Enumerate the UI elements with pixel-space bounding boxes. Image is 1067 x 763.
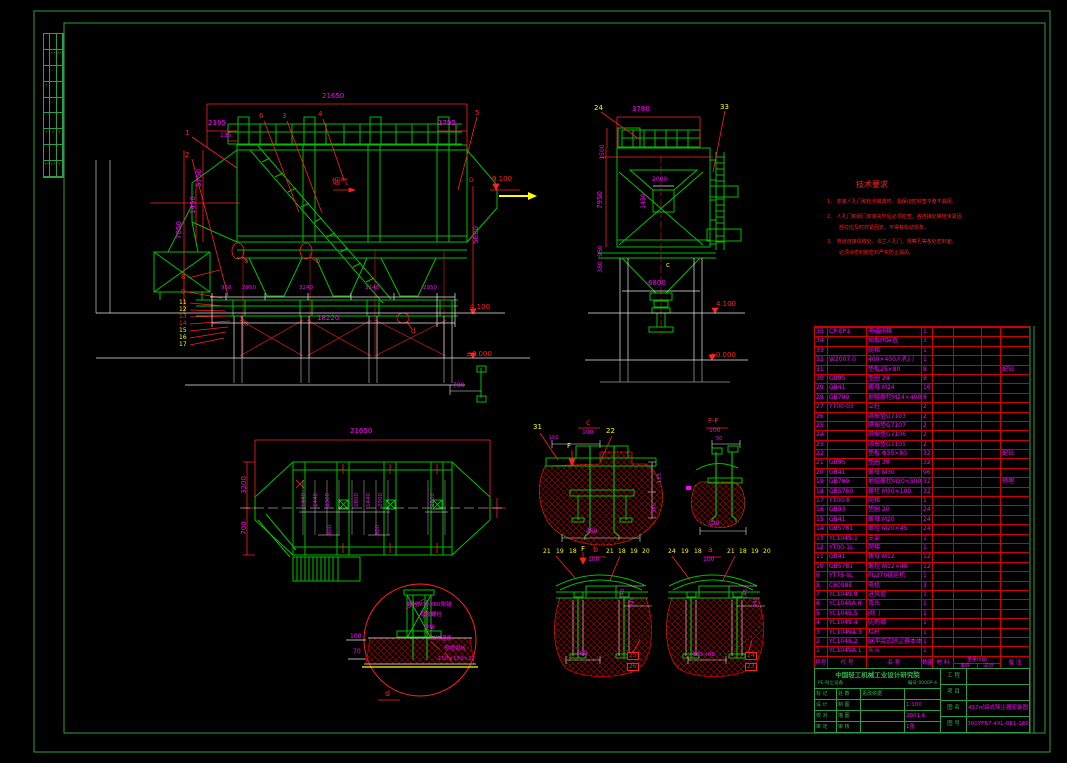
bom-item-unit-weight — [954, 421, 982, 430]
bom-item-material — [933, 468, 954, 477]
bom-item-qty: 2 — [922, 412, 933, 421]
bom-item-name: 螺母 M24 — [867, 383, 922, 392]
bom-item-name: 垫圈 24 — [867, 374, 922, 383]
bom-item-unit-weight — [954, 534, 982, 543]
bom-item-remark — [1001, 430, 1029, 439]
signature-row: 审 定 审 核 1张 — [815, 722, 940, 732]
bom-row: 2 YC1049.2 脉冲袋式除尘器本体 1 — [815, 637, 1029, 646]
title-block-right: 工 程 项 目 图 名 437㎡袋式除尘器安装图 图 号 300YFB7-4XL… — [941, 669, 1029, 732]
side-elevation-labels-label: 4.100 — [716, 301, 736, 308]
bom-item-material — [933, 393, 954, 402]
bom-row: 30 GB95 垫圈 24 8 — [815, 374, 1029, 383]
bom-item-remark — [1001, 524, 1029, 533]
bom-item-qty: 2 — [922, 402, 933, 411]
plan-view-dimensions — [243, 440, 506, 555]
bom-item-unit-weight — [954, 552, 982, 561]
bom-item-total-weight — [982, 336, 1001, 345]
title-block: 中国轻工机械工业设计研究院 PE-除尘设备 编号:0000P-4 标 记 处 数… — [814, 668, 1030, 733]
bom-item-material — [933, 430, 954, 439]
bom-item-unit-weight — [954, 346, 982, 355]
bom-item-total-weight — [982, 468, 1001, 477]
bom-item-name: 支架 — [867, 534, 922, 543]
bom-item-material — [933, 599, 954, 608]
bom-item-name: 垫圈 30 — [867, 458, 922, 467]
revision-cell: ∙ — [57, 129, 63, 145]
bom-item-material — [933, 515, 954, 524]
bom-item-material — [933, 327, 954, 336]
front-elevation-labels-label: 18220 — [317, 315, 339, 322]
bom-item-total-weight — [982, 515, 1001, 524]
technical-notes-label: 部位应及时拧紧固定，不得有松动现象。 — [839, 226, 929, 231]
bom-item-unit-weight — [954, 571, 982, 580]
front-elevation-labels-label: 5750 — [196, 169, 203, 187]
bom-item-qty: 1 — [922, 543, 933, 552]
bom-item-unit-weight — [954, 637, 982, 646]
bom-item-code: CP-EP1 — [828, 327, 867, 336]
detail-labels-label: 70 — [353, 649, 361, 655]
bom-item-remark — [1001, 505, 1029, 514]
bom-row: 34 插板阀装置 3 — [815, 336, 1029, 345]
bom-item-name: 电机 — [867, 581, 922, 590]
bom-item-unit-weight — [954, 515, 982, 524]
title-block-field-value — [967, 669, 1029, 684]
bom-item-unit-weight — [954, 646, 982, 655]
front-elevation-labels-label: 2950 — [423, 286, 437, 292]
detail-labels-label: 100 — [709, 428, 720, 434]
bom-item-qty: 1 — [922, 534, 933, 543]
bom-item-code: YC1049.2 — [828, 637, 867, 646]
plan-view-labels-label: 1440 — [367, 493, 373, 507]
bom-item-remark — [1001, 590, 1029, 599]
detail-labels-label: 120 — [708, 521, 719, 527]
bom-item-remark — [1001, 628, 1029, 637]
bom-item-code — [828, 365, 867, 374]
bom-item-qty: 1 — [922, 590, 933, 599]
plan-view — [255, 462, 490, 581]
bom-item-code — [828, 412, 867, 421]
bom-item-no: 21 — [815, 458, 828, 467]
bom-item-remark — [1001, 534, 1029, 543]
bom-item-material — [933, 365, 954, 374]
bom-item-total-weight — [982, 524, 1001, 533]
front-elevation-labels-label: 700 — [453, 383, 464, 389]
signature-note: 更改依据 — [861, 689, 905, 699]
bom-item-total-weight — [982, 421, 1001, 430]
bom-item-remark — [1001, 562, 1029, 571]
detail-labels-label: 18 — [569, 549, 577, 555]
company-dept: PE-除尘设备 — [818, 680, 843, 688]
detail-labels-label: 18 — [618, 549, 626, 555]
bom-item-name: 隔振垫G7106 — [867, 430, 922, 439]
detail-labels-label: 150 — [549, 436, 559, 441]
side-elevation-labels-label: 33 — [720, 104, 729, 111]
bom-row: 31 垫板25×80 8 配钻 — [815, 365, 1029, 374]
bom-item-total-weight — [982, 581, 1001, 590]
signature-label-2: 处 数 — [837, 689, 861, 699]
front-elevation-labels-label: b — [316, 258, 320, 265]
front-elevation-labels-label: 6 — [259, 113, 263, 120]
bom-item-code: YC1049A.3 — [828, 628, 867, 637]
front-elevation-view — [154, 117, 497, 402]
bom-item-material — [933, 628, 954, 637]
bom-item-qty: 2 — [922, 430, 933, 439]
signature-label-2: 描 图 — [837, 711, 861, 721]
bom-item-material — [933, 487, 954, 496]
bom-item-no: 11 — [815, 552, 828, 561]
bom-item-remark — [1001, 421, 1029, 430]
bom-item-name: 螺栓 M30×100 — [867, 487, 922, 496]
company-cert: 编号:0000P-4 — [908, 680, 937, 688]
bom-item-total-weight — [982, 477, 1001, 486]
bom-item-total-weight — [982, 505, 1001, 514]
bom-item-code: GB95 — [828, 458, 867, 467]
bom-item-code: GB799 — [828, 393, 867, 402]
bom-item-total-weight — [982, 374, 1001, 383]
front-elevation-labels-label: 1795 — [438, 120, 456, 127]
bom-item-qty: 8 — [922, 393, 933, 402]
bom-item-no: 10 — [815, 562, 828, 571]
detail-labels-label: 预埋钢板 — [444, 647, 466, 653]
detail-labels-label: a — [708, 546, 713, 554]
revision-cell — [57, 145, 63, 161]
bom-item-no: 15 — [815, 515, 828, 524]
bom-table: 35 CP-EP1 电磁阀箱 1 34 插板阀装置 3 — [814, 326, 1030, 670]
bom-item-total-weight — [982, 552, 1001, 561]
bom-item-qty: 32 — [922, 477, 933, 486]
bom-item-material — [933, 402, 954, 411]
bom-item-unit-weight — [954, 468, 982, 477]
bom-item-material — [933, 421, 954, 430]
bom-row: 19 GB799 地脚螺栓M30×500 32 预埋 — [815, 477, 1029, 486]
bom-item-remark — [1001, 543, 1029, 552]
bom-item-code: GB41 — [828, 468, 867, 477]
front-elevation-labels-label: 18 — [241, 322, 249, 328]
plan-view-labels-label: 700 — [241, 521, 248, 534]
front-elevation-labels-label: 950 — [221, 286, 232, 292]
front-elevation-labels-label: a — [244, 258, 248, 265]
bom-item-unit-weight — [954, 327, 982, 336]
bom-item-material — [933, 524, 954, 533]
bom-item-no: 17 — [815, 496, 828, 505]
bom-row: 32 W2007.0 400×400人孔门 1 — [815, 355, 1029, 364]
bom-item-remark: 配钻 — [1001, 365, 1029, 374]
bom-rows: 35 CP-EP1 电磁阀箱 1 34 插板阀装置 3 — [815, 327, 1029, 656]
bom-item-unit-weight — [954, 383, 982, 392]
side-elevation-labels-label: 950 — [598, 245, 604, 256]
signature-value: 1:100 — [905, 700, 939, 710]
bom-item-material — [933, 543, 954, 552]
detail-labels-label: d — [385, 690, 390, 698]
bom-item-no: 9 — [815, 571, 828, 580]
plan-view-labels-label: 1440 — [302, 493, 308, 507]
bom-item-qty: 32 — [922, 449, 933, 458]
front-elevation-labels-label: 2395 — [208, 120, 226, 127]
bom-item-no: 34 — [815, 336, 828, 345]
front-elevation-labels-label: 21650 — [322, 93, 344, 100]
detail-labels-label: F — [581, 546, 585, 553]
front-elevation-labels-label: 9 — [181, 289, 185, 296]
bom-item-remark — [1001, 383, 1029, 392]
bom-item-no: 7 — [815, 590, 828, 599]
bom-item-unit-weight — [954, 365, 982, 374]
bom-item-remark — [1001, 336, 1029, 345]
front-elevation-labels-label: D — [469, 178, 474, 184]
signature-label-1: 标 记 — [815, 689, 837, 699]
bom-item-unit-weight — [954, 355, 982, 364]
detail-labels-label: 二次灌浆 — [430, 637, 452, 643]
bom-item-unit-weight — [954, 496, 982, 505]
bom-item-unit-weight — [954, 458, 982, 467]
bom-item-material — [933, 355, 954, 364]
detail-labels-label: 100 — [582, 430, 593, 436]
bom-item-material — [933, 383, 954, 392]
bom-item-unit-weight — [954, 628, 982, 637]
bom-row: 25 隔振垫G7107 2 — [815, 421, 1029, 430]
bom-header-remark: 备 注 — [1001, 656, 1029, 669]
bom-item-qty: 1 — [922, 618, 933, 627]
bom-item-remark — [1001, 458, 1029, 467]
bom-item-material — [933, 505, 954, 514]
detail-labels-label: 345 — [653, 503, 659, 514]
bom-item-qty: 16 — [922, 383, 933, 392]
revision-cell — [57, 34, 63, 50]
bom-item-no: 25 — [815, 421, 828, 430]
bom-item-remark — [1001, 581, 1029, 590]
bom-item-remark — [1001, 327, 1029, 336]
bom-row: 15 GB41 螺母 M20 24 — [815, 515, 1029, 524]
bom-item-qty: 2 — [922, 421, 933, 430]
bom-item-material — [933, 412, 954, 421]
bom-item-code: YT75-9L — [828, 571, 867, 580]
bom-item-qty: 1 — [922, 599, 933, 608]
plan-view-labels-label: 1440 — [314, 493, 320, 507]
bom-item-no: 5 — [815, 609, 828, 618]
bom-item-unit-weight — [954, 562, 982, 571]
bom-item-name: 爬梯 — [867, 346, 922, 355]
bom-item-remark — [1001, 393, 1029, 402]
front-elevation-labels-label: 4.100 — [470, 304, 490, 311]
signature-value: 1张 — [905, 722, 939, 732]
bom-item-qty: 12 — [922, 552, 933, 561]
bom-item-code: GB5780 — [828, 487, 867, 496]
bom-item-material — [933, 440, 954, 449]
bom-item-name: 隔振垫G7103 — [867, 412, 922, 421]
bom-item-total-weight — [982, 628, 1001, 637]
front-elevation-labels-label: 5 — [475, 110, 479, 117]
bom-item-code — [828, 346, 867, 355]
detail-labels-label: b — [593, 546, 598, 554]
bom-row: 20 GB41 螺母 M30 96 — [815, 468, 1029, 477]
bom-item-name: 垫圈 20 — [867, 505, 922, 514]
bom-item-unit-weight — [954, 374, 982, 383]
side-elevation-labels-label: 24 — [594, 105, 603, 112]
bom-row: 11 GB41 螺母 M12 12 — [815, 552, 1029, 561]
bom-item-total-weight — [982, 449, 1001, 458]
bom-item-remark — [1001, 374, 1029, 383]
detail-labels-label: 145 — [744, 589, 750, 600]
detail-labels-label: 24 — [745, 652, 757, 660]
front-elevation-labels-label: d — [411, 328, 415, 335]
technical-notes-label: 1、 安装人孔门和检测装置时，需保证密封垫平整不漏风。 — [827, 200, 957, 205]
plan-view-labels-label: 21650 — [350, 428, 372, 435]
detail-labels-label: 245 — [754, 597, 760, 608]
bom-item-remark — [1001, 618, 1029, 627]
bom-item-total-weight — [982, 543, 1001, 552]
front-elevation-labels-label: 8 — [181, 274, 185, 281]
front-elevation-labels-label: 1450 — [190, 196, 197, 214]
bom-item-total-weight — [982, 346, 1001, 355]
bom-item-code: YC1049-1 — [828, 534, 867, 543]
bom-item-unit-weight — [954, 449, 982, 458]
bom-item-total-weight — [982, 327, 1001, 336]
bom-row: 1 YC1049A.1 灰斗 1 — [815, 646, 1029, 655]
bom-item-remark — [1001, 552, 1029, 561]
bom-row: 26 隔振垫G7103 2 — [815, 412, 1029, 421]
bom-item-remark — [1001, 637, 1029, 646]
bom-item-name: 灰斗 — [867, 646, 922, 655]
revision-cell: ∙ — [57, 161, 63, 177]
bom-item-code — [828, 430, 867, 439]
bom-item-name: 螺母 M12 — [867, 552, 922, 561]
bom-item-name: 立柱 — [867, 402, 922, 411]
bom-item-remark — [1001, 440, 1029, 449]
plan-view-labels-label: 3200 — [241, 476, 248, 494]
plan-view-centerlines — [240, 480, 505, 535]
signature-grid: 标 记 处 数 更改依据 设 计 制 图 1:100 校 对 描 图 20 — [815, 689, 940, 732]
bom-item-no: 27 — [815, 402, 828, 411]
bom-item-name: 螺母 M20 — [867, 515, 922, 524]
bom-item-no: 31 — [815, 365, 828, 374]
bom-item-material — [933, 581, 954, 590]
bom-row: 29 GB41 螺母 M24 16 — [815, 383, 1029, 392]
bom-item-no: 1 — [815, 646, 828, 655]
detail-labels-label: 450 — [586, 529, 597, 535]
bom-item-code: YT00-1L — [828, 543, 867, 552]
bom-item-name: 400×400人孔门 — [867, 355, 922, 364]
bom-row: 33 爬梯 1 — [815, 346, 1029, 355]
bom-item-unit-weight — [954, 543, 982, 552]
front-elevation-labels-label: 2 — [185, 152, 189, 159]
side-elevation-labels-label: ±0.000 — [710, 352, 736, 359]
bom-item-remark — [1001, 346, 1029, 355]
title-block-field-label: 工 程 — [941, 669, 967, 684]
bom-item-qty: 24 — [922, 505, 933, 514]
bom-item-name: 阀门 — [867, 609, 922, 618]
signature-label-1: 审 定 — [815, 722, 837, 732]
front-elevation-labels-label: 3 — [282, 113, 286, 120]
side-elevation-labels-label: 1500 — [600, 144, 606, 159]
bom-item-name: 螺母 M30 — [867, 468, 922, 477]
bom-item-code: YT00-03 — [828, 402, 867, 411]
bom-item-unit-weight — [954, 581, 982, 590]
side-elevation-labels-label: 3780 — [632, 106, 650, 113]
bom-item-total-weight — [982, 571, 1001, 580]
bom-item-name: 隔振垫G7105 — [867, 440, 922, 449]
bom-item-qty: 8 — [922, 365, 933, 374]
bom-item-name: 垫板 Φ35×80 — [867, 449, 922, 458]
bom-item-no: 3 — [815, 628, 828, 637]
bom-item-code: YC1049A.6 — [828, 599, 867, 608]
bom-item-code: W2007.0 — [828, 355, 867, 364]
bom-row: 23 隔振垫G7105 2 — [815, 440, 1029, 449]
signature-row: 校 对 描 图 2001.6 — [815, 711, 940, 722]
bom-item-code: GB93 — [828, 505, 867, 514]
bom-item-qty: 24 — [922, 524, 933, 533]
technical-notes-label: 技术要求 — [856, 181, 888, 189]
detail-labels-label: 100 — [350, 634, 361, 640]
detail-labels-label: 23 — [745, 663, 757, 671]
front-elevation-labels-label: 2950 — [242, 286, 256, 292]
bom-item-name: 电磁阀箱 — [867, 327, 922, 336]
bom-item-name: 爬梯 — [867, 496, 922, 505]
bom-item-no: 26 — [815, 412, 828, 421]
detail-labels-label: c — [586, 419, 590, 427]
bom-item-qty: 1 — [922, 571, 933, 580]
title-block-row: 项 目 — [941, 685, 1029, 701]
bom-item-remark — [1001, 487, 1029, 496]
bom-item-material — [933, 552, 954, 561]
bom-item-remark: 配钻 — [1001, 449, 1029, 458]
bom-item-name: FU270链运机 — [867, 571, 922, 580]
technical-notes-label: 必须涂密封胶密封严实防止漏风。 — [839, 251, 914, 256]
bom-item-no: 33 — [815, 346, 828, 355]
bom-item-material — [933, 477, 954, 486]
bom-item-total-weight — [982, 430, 1001, 439]
bom-item-remark — [1001, 412, 1029, 421]
bom-item-qty: 3 — [922, 581, 933, 590]
bom-item-code: GB799 — [828, 477, 867, 486]
bom-item-unit-weight — [954, 618, 982, 627]
bom-item-material — [933, 571, 954, 580]
bom-item-material — [933, 458, 954, 467]
bom-item-qty: 1 — [922, 646, 933, 655]
bom-item-qty: 1 — [922, 609, 933, 618]
bom-item-code: YC1049A.1 — [828, 646, 867, 655]
revision-cell — [57, 113, 63, 129]
bom-item-total-weight — [982, 618, 1001, 627]
bom-header-qty: 数量 — [922, 656, 933, 669]
detail-labels-label: -150×150×12 — [436, 657, 475, 663]
bom-row: 6 YC1049A.6 弯头 1 — [815, 599, 1029, 608]
plan-view-labels-label: 800 — [376, 525, 382, 536]
bom-row: 24 隔振垫G7106 2 — [815, 430, 1029, 439]
detail-labels-label: 22 — [606, 428, 615, 435]
signature-row: 标 记 处 数 更改依据 — [815, 689, 940, 700]
front-elevation-labels-label: 3240 — [365, 286, 379, 292]
bom-item-code: GB95 — [828, 374, 867, 383]
detail-labels-label: 50 — [716, 437, 722, 442]
bom-item-name: 弯头 — [867, 599, 922, 608]
bom-item-name: 脉冲袋式除尘器本体 — [867, 637, 922, 646]
bom-item-no: 19 — [815, 477, 828, 486]
detail-labels-label: 19 — [681, 549, 689, 555]
detail-labels-label: 19 — [556, 549, 564, 555]
side-elevation-labels-label: c — [666, 262, 670, 269]
side-elevation-labels-label: 7950 — [597, 191, 604, 209]
bom-item-total-weight — [982, 355, 1001, 364]
bom-item-qty: 2 — [922, 440, 933, 449]
bom-item-code: GB5781 — [828, 524, 867, 533]
bom-item-material — [933, 590, 954, 599]
bom-item-code: GB41 — [828, 383, 867, 392]
title-block-left: 中国轻工机械工业设计研究院 PE-除尘设备 编号:0000P-4 标 记 处 数… — [815, 669, 941, 732]
bom-item-remark — [1001, 355, 1029, 364]
technical-notes-label: 3、 管道连接焊缝处、法兰人孔门、观察孔等各处密封面， — [827, 240, 957, 245]
bom-item-name: 防雨棚 — [867, 618, 922, 627]
bom-item-unit-weight — [954, 477, 982, 486]
front-elevation-labels-label: 7050 — [176, 221, 183, 239]
bom-item-remark — [1001, 468, 1029, 477]
